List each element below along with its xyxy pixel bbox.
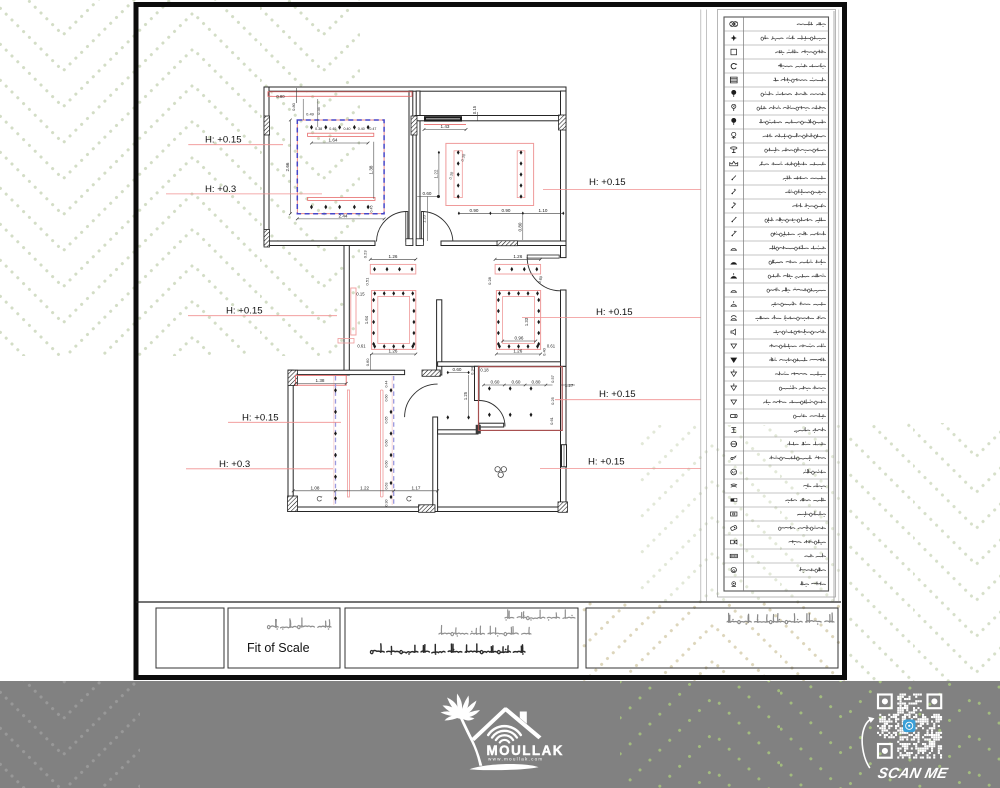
svg-text:0.80: 0.80	[276, 94, 285, 99]
svg-text:2.66: 2.66	[285, 162, 290, 171]
svg-text:SCAN ME: SCAN ME	[876, 765, 950, 782]
svg-text:1.20: 1.20	[422, 214, 427, 223]
svg-text:1.43: 1.43	[441, 124, 450, 129]
svg-text:1.08: 1.08	[311, 485, 320, 490]
svg-text:H: +0.15: H: +0.15	[205, 135, 242, 146]
svg-text:1.22: 1.22	[360, 485, 369, 490]
svg-text:0.80: 0.80	[532, 380, 541, 385]
svg-text:H: +0.15: H: +0.15	[589, 177, 626, 188]
svg-text:0.40: 0.40	[542, 347, 547, 356]
svg-text:MOULLAK: MOULLAK	[487, 743, 564, 758]
svg-text:0.28: 0.28	[487, 276, 492, 285]
svg-text:0.40: 0.40	[329, 127, 336, 131]
svg-text:H: +0.15: H: +0.15	[596, 307, 633, 318]
svg-text:0.60: 0.60	[385, 395, 389, 402]
svg-text:0.60: 0.60	[385, 440, 389, 447]
svg-text:0.30: 0.30	[385, 500, 389, 507]
svg-text:1.64: 1.64	[364, 315, 369, 324]
svg-text:0.44: 0.44	[385, 381, 389, 388]
svg-text:0.80: 0.80	[517, 222, 522, 231]
svg-text:0.57: 0.57	[550, 374, 555, 383]
svg-text:0.23: 0.23	[362, 250, 367, 259]
svg-text:0.51: 0.51	[365, 277, 370, 286]
svg-text:1.26: 1.26	[513, 254, 522, 259]
svg-text:H: +0.15: H: +0.15	[242, 412, 279, 423]
svg-text:0.60: 0.60	[423, 191, 432, 196]
svg-text:0.25: 0.25	[550, 396, 555, 405]
svg-text:0.40: 0.40	[344, 127, 351, 131]
svg-text:0.60: 0.60	[512, 380, 521, 385]
svg-text:1.38: 1.38	[316, 378, 325, 383]
svg-text:1.26: 1.26	[389, 349, 398, 354]
svg-text:0.18: 0.18	[480, 368, 489, 373]
svg-text:0.15: 0.15	[356, 292, 365, 297]
svg-text:1.10: 1.10	[539, 208, 548, 213]
svg-text:0.80: 0.80	[291, 102, 296, 111]
svg-text:0.96: 0.96	[515, 336, 524, 341]
svg-text:0.45: 0.45	[370, 206, 374, 213]
svg-text:0.63: 0.63	[385, 483, 389, 490]
svg-text:2.44: 2.44	[339, 213, 348, 218]
svg-text:0.90: 0.90	[502, 208, 511, 213]
svg-text:0.60: 0.60	[385, 461, 389, 468]
svg-text:AC: AC	[731, 470, 736, 474]
svg-text:1.27: 1.27	[565, 383, 574, 388]
svg-text:Fit of Scale: Fit of Scale	[247, 641, 310, 655]
svg-text:0.60: 0.60	[491, 380, 500, 385]
svg-text:H: +0.3: H: +0.3	[205, 184, 236, 195]
svg-text:0.49: 0.49	[306, 112, 315, 117]
svg-text:H: +0.15: H: +0.15	[226, 306, 263, 317]
svg-text:0.35: 0.35	[316, 106, 321, 115]
svg-text:0.60: 0.60	[365, 358, 370, 367]
svg-text:1.22: 1.22	[433, 169, 438, 178]
svg-text:1.25: 1.25	[463, 391, 468, 400]
svg-text:0.61: 0.61	[357, 344, 366, 349]
svg-text:0.34: 0.34	[470, 366, 475, 375]
svg-text:1.38: 1.38	[368, 165, 373, 174]
svg-text:1.64: 1.64	[329, 138, 338, 143]
svg-text:0.61: 0.61	[547, 344, 556, 349]
svg-text:0.15: 0.15	[472, 105, 477, 114]
svg-text:0.65: 0.65	[385, 417, 389, 424]
svg-text:1.26: 1.26	[389, 254, 398, 259]
svg-text:H: +0.3: H: +0.3	[219, 459, 250, 470]
svg-text:0.60: 0.60	[453, 367, 462, 372]
svg-text:0.61: 0.61	[549, 416, 554, 425]
svg-text:H: +0.15: H: +0.15	[599, 389, 636, 400]
svg-text:1.17: 1.17	[412, 485, 421, 490]
svg-text:H: +0.15: H: +0.15	[588, 457, 625, 468]
svg-text:1.33: 1.33	[524, 317, 529, 326]
svg-text:0.47: 0.47	[369, 127, 376, 131]
svg-text:0.40: 0.40	[358, 127, 365, 131]
svg-text:0.38: 0.38	[315, 127, 322, 131]
svg-text:0.90: 0.90	[470, 208, 479, 213]
svg-text:www.moullak.com: www.moullak.com	[488, 757, 544, 762]
svg-text:1.26: 1.26	[513, 349, 522, 354]
